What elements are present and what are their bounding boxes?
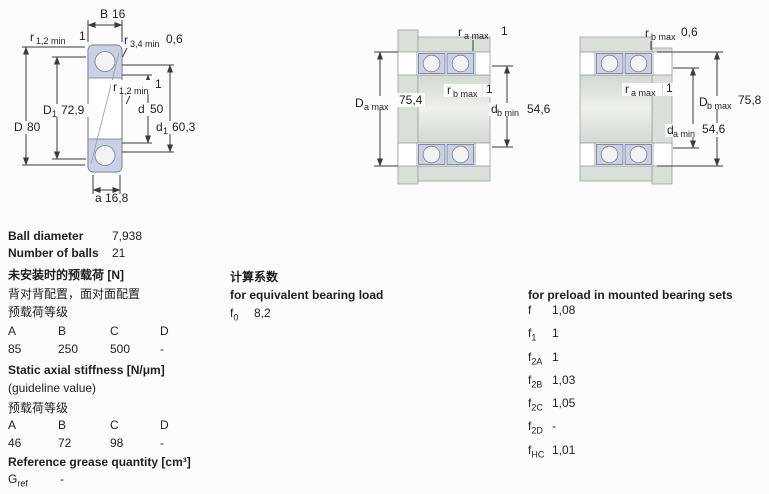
factor-row: f2A1 [528, 348, 575, 371]
cell-value: 250 [58, 342, 110, 356]
equiv-load-title: for equivalent bearing load [230, 288, 383, 302]
abutment-step [652, 143, 672, 166]
dim-ra-sub: a max [631, 88, 656, 98]
cell-value: 500 [110, 342, 160, 356]
symbol-sub: 2D [531, 426, 543, 436]
symbol-sub: 2B [531, 379, 542, 389]
factor-row: f2B1,03 [528, 371, 575, 394]
dim-d-value: 50 [150, 102, 164, 116]
spec-value: 7,938 [112, 229, 142, 243]
symbol-sub: 2A [531, 356, 542, 366]
dim-D1-value: 72,9 [61, 103, 85, 117]
dim-r12-mid-base: r [113, 80, 117, 94]
abutment-step [398, 52, 418, 75]
dim-Da-value: 75,4 [399, 93, 423, 107]
dim-Da-base: D [355, 96, 364, 110]
dim-D-value: 80 [27, 120, 41, 134]
ball-bottom [95, 146, 115, 166]
symbol-sub: ref [17, 478, 28, 488]
dim-da-sub: a min [673, 129, 695, 139]
symbol-sub: HC [531, 449, 544, 459]
cell-value: 72 [58, 436, 110, 450]
dim-r12-mid-value: 1 [155, 77, 162, 91]
factor-value: 1 [552, 326, 559, 340]
preload-config-line: 背对背配置，面对面配置 [8, 285, 140, 302]
cell-value: 85 [8, 342, 58, 356]
stiffness-title: Static axial stiffness [N/μm] [8, 363, 165, 377]
stiffness-value-row: 467298- [8, 436, 164, 450]
stiffness-header-row: ABCD [8, 418, 169, 432]
abutment-step [580, 52, 595, 75]
grease-row: Gref- [8, 472, 64, 488]
dim-ra-sub: a max [464, 31, 489, 41]
dim-r12-top-base: r [30, 30, 34, 44]
preload-header-row: ABCD [8, 324, 169, 338]
symbol-sub: 0 [233, 312, 238, 322]
col-header: D [160, 418, 169, 432]
dim-ra-value: 1 [666, 81, 673, 95]
stiffness-class-line: 预载荷等级 [8, 399, 68, 416]
factor-symbol: f [528, 301, 552, 324]
factor-row: f11 [528, 324, 575, 347]
dim-rb-sub: b max [651, 32, 676, 42]
dim-r12-mid-sub: 1,2 min [119, 86, 149, 96]
housing-bottom [418, 166, 490, 181]
factor-row: f2D- [528, 417, 575, 440]
factor-symbol: f2D [528, 417, 552, 440]
technical-drawings: B 16 r 1,2 min 1 r 3,4 min 0,6 r 1,2 min… [0, 0, 769, 222]
dim-r12-top-sub: 1,2 min [36, 36, 66, 46]
col-header: B [58, 418, 110, 432]
abutment-step [398, 143, 418, 166]
ball-top [95, 52, 115, 72]
dim-r34-sub: 3,4 min [130, 39, 160, 49]
dim-r34-base: r [124, 33, 128, 47]
symbol-base: G [8, 472, 17, 486]
dim-Db-value: 75,8 [738, 93, 762, 107]
dim-d1-base: d [156, 120, 163, 134]
col-header: D [160, 324, 169, 338]
grease-symbol: Gref [8, 472, 60, 488]
abutment-step [580, 143, 595, 166]
factor-symbol: f2A [528, 348, 552, 371]
ball [601, 55, 618, 72]
ball [452, 55, 469, 72]
dim-rb-value: 0,6 [681, 25, 698, 39]
dim-db-value: 54,6 [527, 102, 551, 116]
dim-a-value: 16,8 [105, 191, 129, 205]
col-header: C [110, 324, 160, 338]
dim-D1-base: D [43, 103, 52, 117]
factor-symbol: fHC [528, 441, 552, 464]
cell-value: - [160, 342, 164, 356]
ball [423, 146, 440, 163]
ball [601, 146, 618, 163]
drawing-set-right: r b max 0,6 r a max 1 D b max 75,8 d a m… [580, 25, 763, 184]
dim-rb-value: 1 [486, 82, 493, 96]
abutment-step [652, 52, 672, 75]
factor-value: 8,2 [254, 306, 271, 320]
dim-Db-sub: b max [707, 101, 732, 111]
dim-B-value: 16 [112, 7, 126, 21]
spec-value: 21 [112, 246, 125, 260]
dim-ra-value: 1 [501, 24, 508, 38]
preload-value-row: 85250500- [8, 342, 164, 356]
factor-value: - [552, 419, 556, 433]
symbol-sub: 2C [531, 403, 543, 413]
dim-r34-value: 0,6 [166, 32, 183, 46]
factor-symbol: f2C [528, 394, 552, 417]
spec-label: Ball diameter [8, 229, 112, 243]
spec-row-number-of-balls: Number of balls21 [8, 246, 125, 260]
dim-d1-sub: 1 [163, 126, 168, 136]
spec-label: Number of balls [8, 246, 112, 260]
drawing-set-middle: r a max 1 D a max 75,4 r b max 1 d b min… [353, 24, 554, 184]
dim-Da-sub: a max [364, 102, 389, 112]
factor-symbol: f1 [528, 324, 552, 347]
ball [423, 55, 440, 72]
preload-title: 未安装时的预载荷 [N] [8, 266, 124, 283]
preload-class-line: 预载荷等级 [8, 303, 68, 320]
spec-row-ball-diameter: Ball diameter7,938 [8, 229, 142, 243]
factor-value: 1,08 [552, 303, 575, 317]
col-header: B [58, 324, 110, 338]
dim-rb-base: r [447, 83, 451, 97]
factor-value: 1,03 [552, 373, 575, 387]
dim-r12-top-value: 1 [79, 29, 86, 43]
calc-title: 计算系数 [230, 268, 278, 285]
abutment-step [475, 143, 490, 166]
f0-row: f08,2 [230, 306, 271, 322]
dim-D1-sub: 1 [52, 109, 57, 119]
dim-da-value: 54,6 [702, 122, 726, 136]
dim-a-label: a [95, 191, 102, 205]
dim-d-label: d [138, 102, 145, 116]
cell-value: 98 [110, 436, 160, 450]
factor-value: 1,05 [552, 396, 575, 410]
dim-rb-base: r [645, 26, 649, 40]
symbol-sub: 1 [531, 333, 536, 343]
ball [630, 55, 647, 72]
symbol-base: f [528, 303, 531, 317]
grease-title: Reference grease quantity [cm³] [8, 455, 191, 469]
col-header: A [8, 418, 58, 432]
col-header: A [8, 324, 58, 338]
cell-value: - [160, 436, 164, 450]
dim-ra-base: r [625, 82, 629, 96]
housing-bottom [580, 166, 652, 181]
dim-B-label: B [100, 7, 108, 21]
ball [630, 146, 647, 163]
factor-row: f1,08 [528, 301, 575, 324]
grease-value: - [60, 472, 64, 486]
factor-symbol: f2B [528, 371, 552, 394]
factor-value: 1 [552, 350, 559, 364]
housing-top [580, 37, 652, 52]
drawing-single-bearing: B 16 r 1,2 min 1 r 3,4 min 0,6 r 1,2 min… [12, 7, 196, 205]
preload-factors-title: for preload in mounted bearing sets [528, 288, 733, 302]
col-header: C [110, 418, 160, 432]
dim-db-sub: b min [497, 108, 519, 118]
cell-value: 46 [8, 436, 58, 450]
factor-row: fHC1,01 [528, 441, 575, 464]
factor-value: 1,01 [552, 443, 575, 457]
factor-row: f2C1,05 [528, 394, 575, 417]
stiffness-guideline-line: (guideline value) [8, 381, 96, 395]
factor-symbol: f0 [230, 306, 254, 322]
dim-rb-sub: b max [453, 89, 478, 99]
preload-factors-list: f1,08 f11 f2A1 f2B1,03 f2C1,05 f2D- fHC1… [528, 301, 575, 464]
ball [452, 146, 469, 163]
abutment-step [475, 52, 490, 75]
dim-ra-base: r [458, 25, 462, 39]
dim-d1-value: 60,3 [172, 120, 196, 134]
dim-D-label: D [14, 120, 23, 134]
